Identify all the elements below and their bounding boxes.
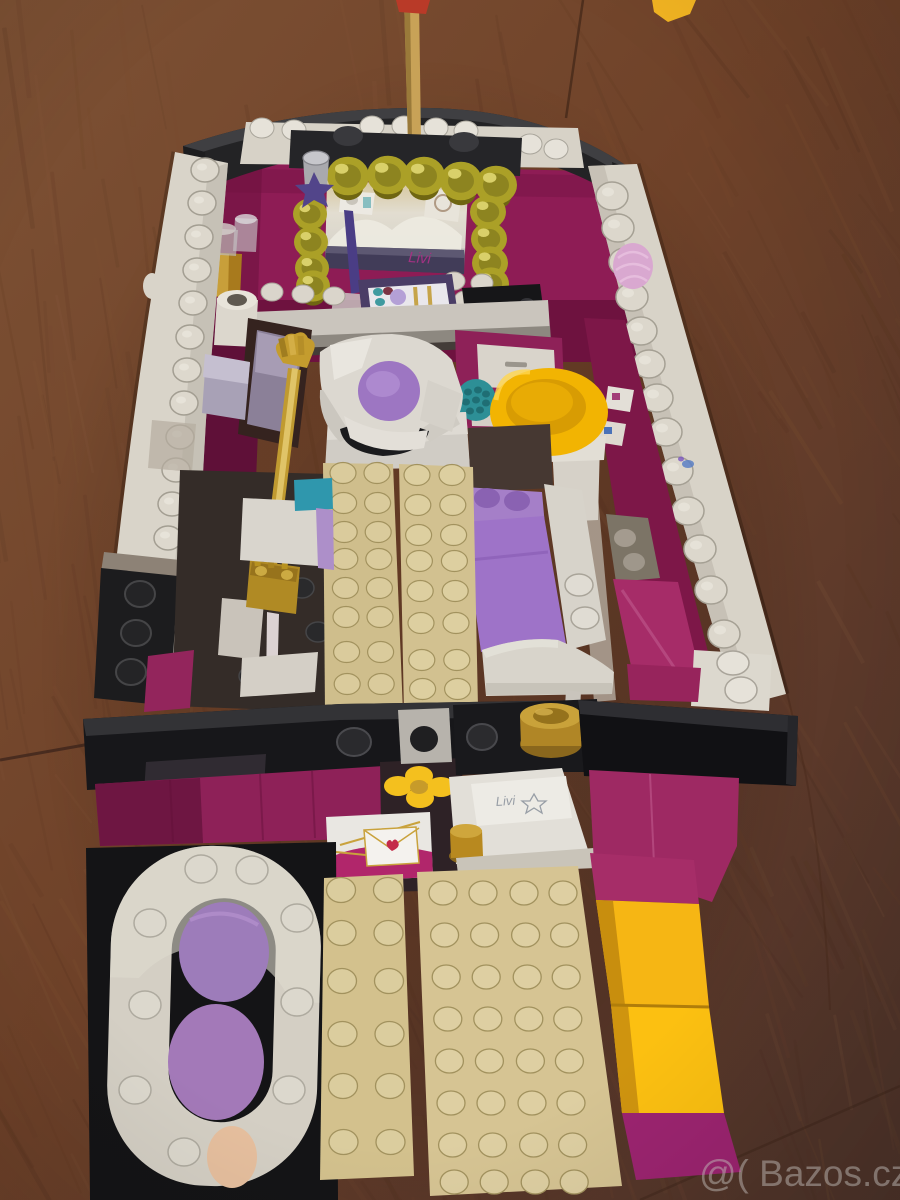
svg-text:@( Bazos.cz: @( Bazos.cz (699, 1153, 900, 1194)
